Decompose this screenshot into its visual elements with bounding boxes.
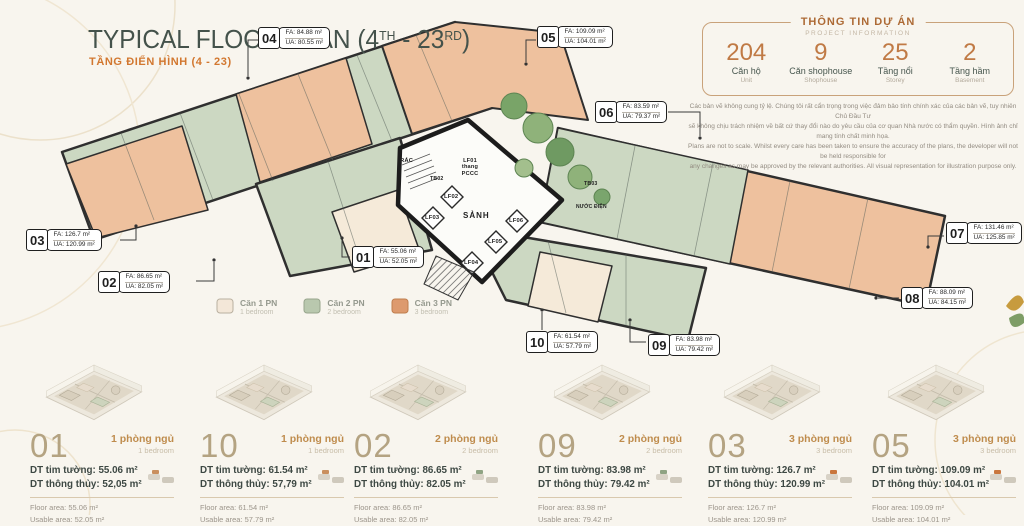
unit-10-render — [202, 352, 326, 430]
disclaimer: Các bản vẽ không cung tỷ lệ. Chúng tôi r… — [688, 102, 1018, 172]
callout-unit-01: 01 FA: 55.06 m²UA: 52.05 m² — [352, 246, 424, 268]
core-label-nuoc-dien: NƯỚC ĐIỆN — [576, 204, 607, 210]
callout-unit-04: 04 FA: 84.88 m²UA: 80.55 m² — [258, 27, 330, 49]
stat-units: 204 Căn hộ Unit — [709, 40, 784, 84]
legend-item-3pn: Căn 3 PN3 bedroom — [391, 298, 452, 316]
stat-storey: 25 Tầng nổi Storey — [858, 40, 933, 84]
core-label-lf05: LF05 — [488, 239, 502, 245]
project-info-title: THÔNG TIN DỰ ÁN — [791, 16, 926, 28]
core-label-rac: RÁC — [400, 158, 413, 164]
callout-unit-07: 07 FA: 131.46 m²UA: 125.85 m² — [946, 222, 1022, 244]
mini-sofa-icon — [316, 466, 346, 484]
project-stats: 204 Căn hộ Unit 9 Căn shophouse Shophous… — [709, 40, 1007, 84]
legend-swatch-1pn-icon — [216, 298, 234, 314]
callout-unit-10: 10 FA: 61.54 m²UA: 57.79 m² — [526, 331, 598, 353]
unit-01-render — [32, 352, 156, 430]
unit-02-render — [356, 352, 480, 430]
mini-sofa-icon — [824, 466, 854, 484]
unit-card-01: 01 1 phòng ngủ1 bedroom DT tim tường: 55… — [26, 352, 178, 508]
core-label-sanh: SẢNH — [463, 211, 490, 220]
unit-05-render — [874, 352, 998, 430]
mini-sofa-icon — [654, 466, 684, 484]
core-label-lf01: LF01 thang PCCC — [455, 158, 485, 177]
mini-sofa-icon — [988, 466, 1018, 484]
stat-basement: 2 Tầng hầm Basement — [933, 40, 1008, 84]
core-label-lf06: LF06 — [509, 218, 523, 224]
core-label-tb02: TB02 — [430, 176, 444, 182]
callout-unit-03: 03 FA: 126.7 m²UA: 120.99 m² — [26, 229, 102, 251]
unit-card-03: 03 3 phòng ngủ3 bedroom DT tim tường: 12… — [704, 352, 856, 508]
unit-card-02: 02 2 phòng ngủ2 bedroom DT tim tường: 86… — [350, 352, 502, 508]
legend-swatch-2pn-icon — [303, 298, 321, 314]
core-label-tb03: TB03 — [584, 181, 598, 187]
floor-plan-page: { "header": { "title_prefix": "TYPICAL F… — [0, 0, 1024, 515]
project-info-panel: THÔNG TIN DỰ ÁN PROJECT INFORMATION 204 … — [702, 22, 1014, 96]
project-info-subtitle: PROJECT INFORMATION — [703, 30, 1013, 37]
legend-item-2pn: Căn 2 PN2 bedroom — [303, 298, 364, 316]
unit-03-render — [710, 352, 834, 430]
mini-sofa-icon — [470, 466, 500, 484]
core-label-lf04: LF04 — [464, 260, 478, 266]
callout-unit-06: 06 FA: 83.59 m²UA: 79.37 m² — [595, 101, 667, 123]
callout-unit-02: 02 FA: 86.65 m²UA: 82.05 m² — [98, 271, 170, 293]
unit-card-05: 05 3 phòng ngủ3 bedroom DT tim tường: 10… — [868, 352, 1020, 508]
unit-card-10: 10 1 phòng ngủ1 bedroom DT tim tường: 61… — [196, 352, 348, 508]
core-label-lf03: LF03 — [425, 215, 439, 221]
legend-swatch-3pn-icon — [391, 298, 409, 314]
legend-item-1pn: Căn 1 PN1 bedroom — [216, 298, 277, 316]
unit-09-render — [540, 352, 664, 430]
stat-shophouse: 9 Căn shophouse Shophouse — [784, 40, 859, 84]
callout-unit-05: 05 FA: 109.09 m²UA: 104.01 m² — [537, 26, 613, 48]
unit-card-09: 09 2 phòng ngủ2 bedroom DT tim tường: 83… — [534, 352, 686, 508]
callout-unit-08: 08 FA: 88.09 m²UA: 84.15 m² — [901, 287, 973, 309]
core-label-lf02: LF02 — [444, 194, 458, 200]
mini-sofa-icon — [146, 466, 176, 484]
page-subtitle: TẦNG ĐIỂN HÌNH (4 - 23) — [89, 56, 232, 68]
unit-type-legend: Căn 1 PN1 bedroom Căn 2 PN2 bedroom Căn … — [216, 298, 452, 316]
